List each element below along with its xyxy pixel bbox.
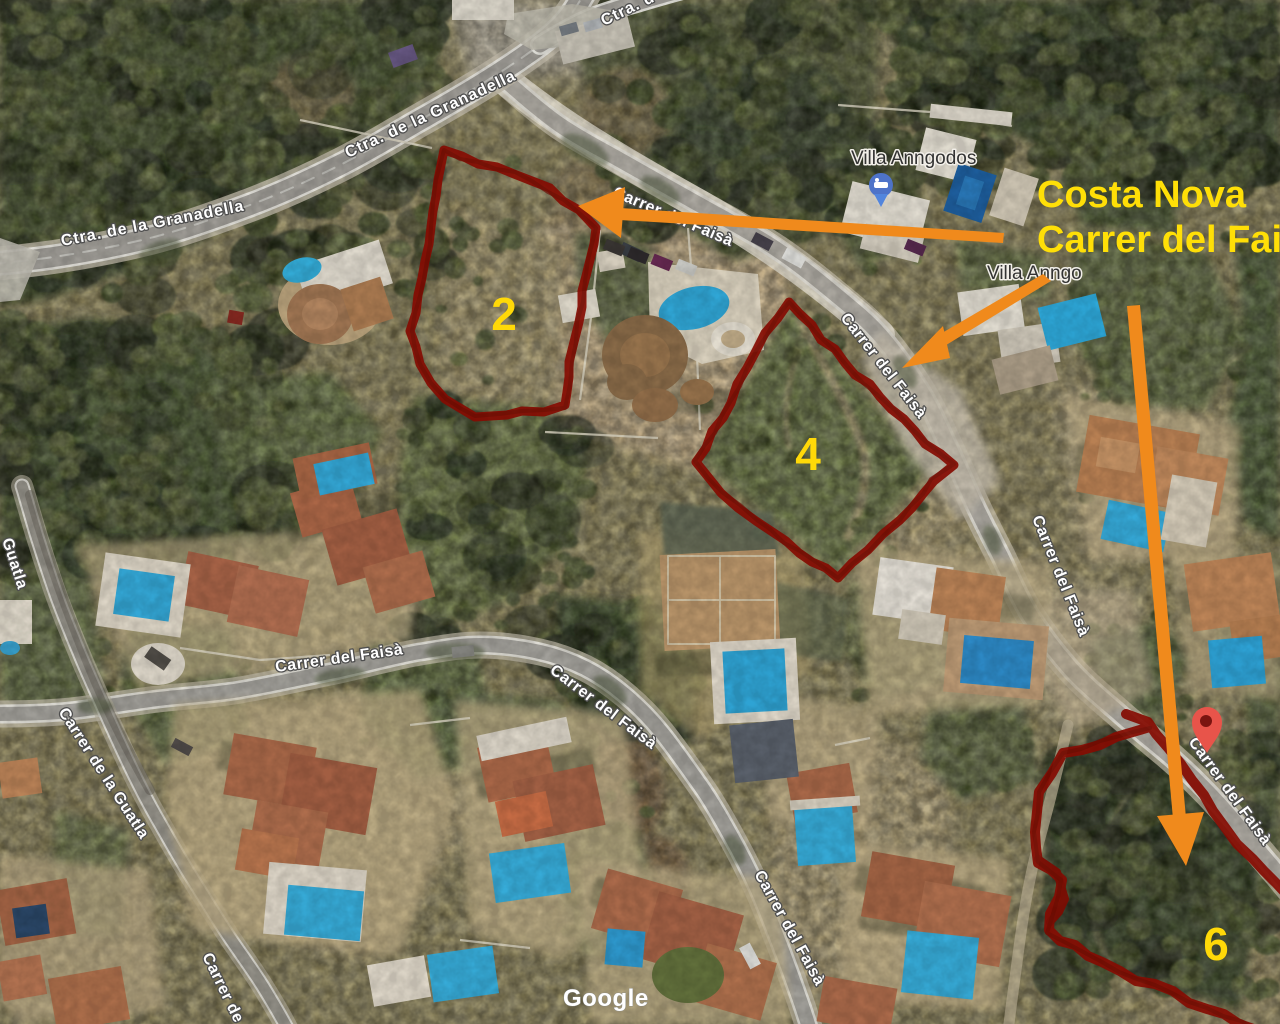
svg-text:Google: Google: [563, 985, 649, 1012]
svg-text:2: 2: [491, 288, 517, 340]
svg-text:6: 6: [1203, 918, 1229, 970]
svg-text:Villa Anngodos: Villa Anngodos: [851, 148, 976, 169]
svg-text:Costa Nova: Costa Nova: [1037, 174, 1247, 216]
svg-text:4: 4: [795, 428, 821, 480]
svg-text:Carrer del Fais: Carrer del Fais: [1037, 219, 1280, 261]
